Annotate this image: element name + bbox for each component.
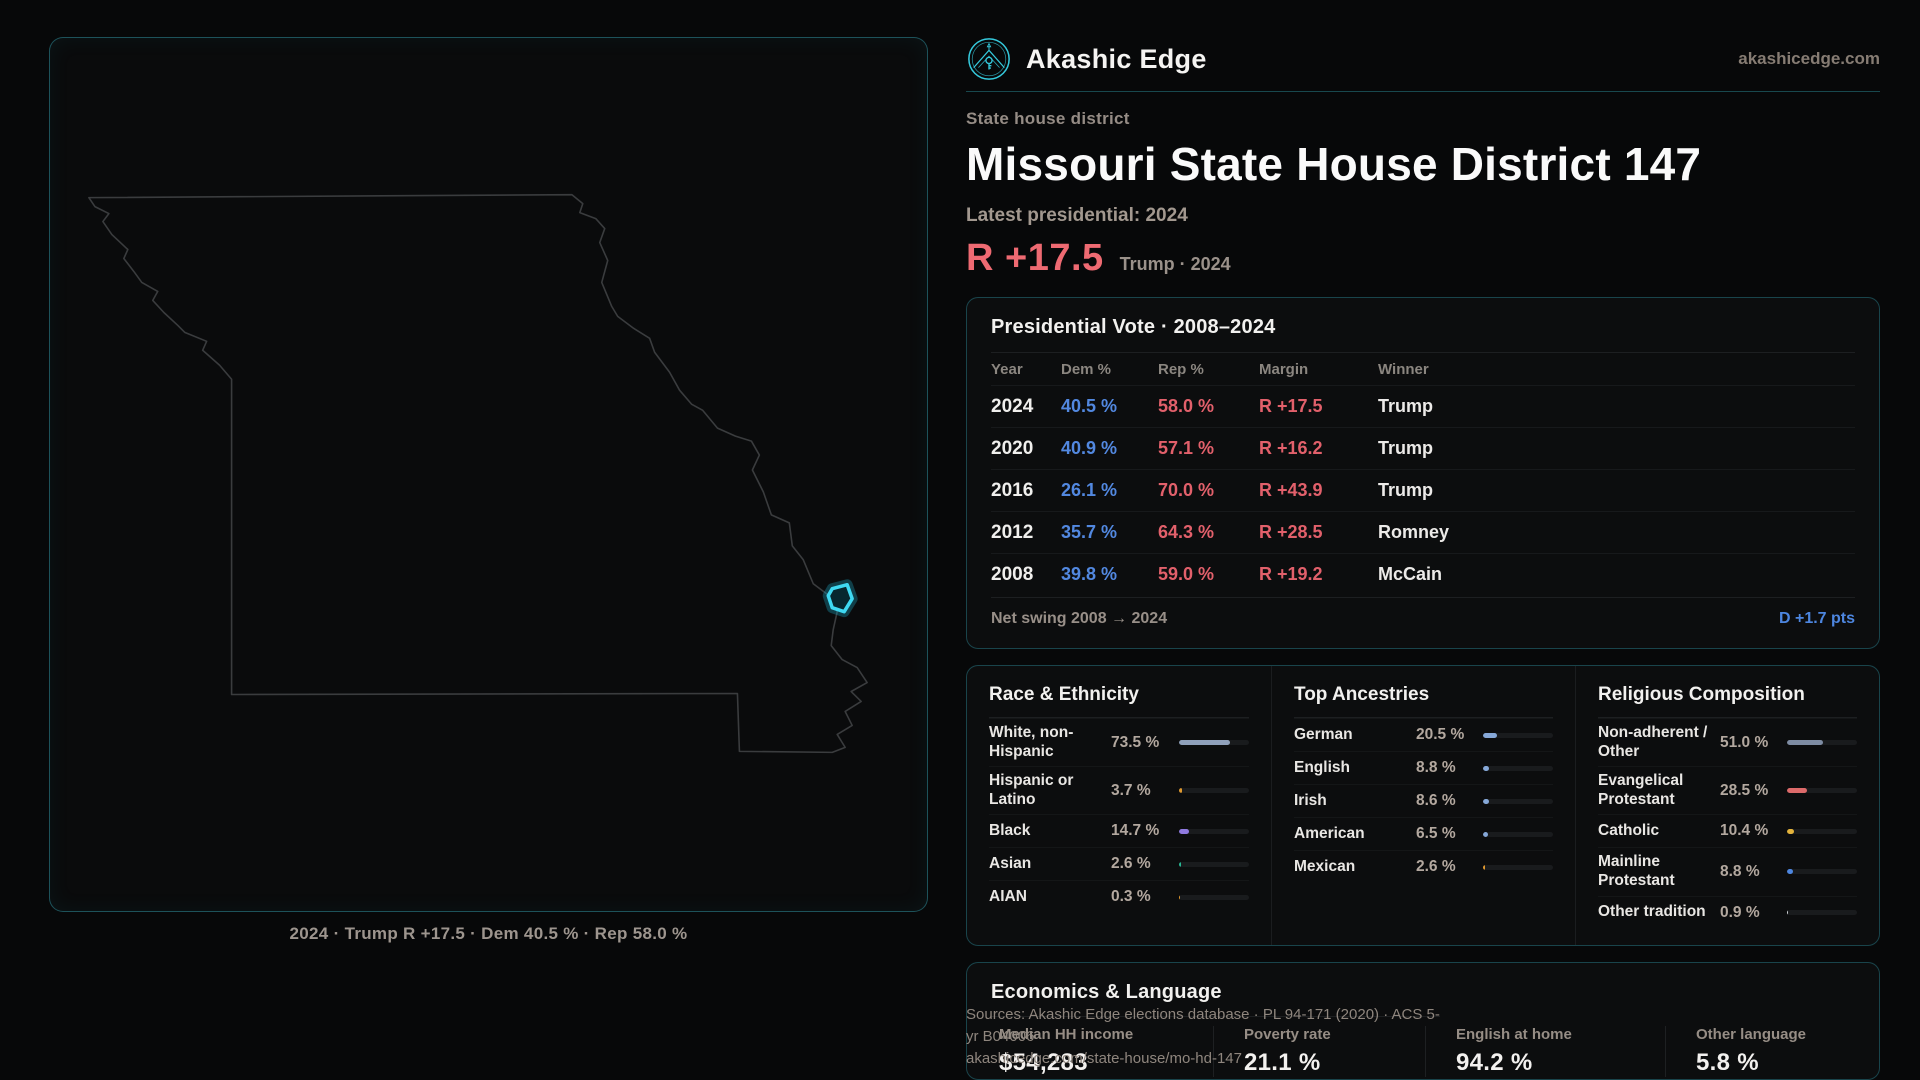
stat-value: 5.8 % <box>1696 1049 1855 1077</box>
race-ethnicity-title: Race & Ethnicity <box>989 684 1249 706</box>
presidential-vote-card: Presidential Vote · 2008–2024 Year Dem %… <box>966 297 1880 649</box>
race-ethnicity-panel: Race & Ethnicity White, non-Hispanic 73.… <box>967 666 1271 945</box>
stat-bar-fill <box>1787 829 1794 834</box>
dem-cell: 40.5 % <box>1061 396 1158 417</box>
sources-line-1: Sources: Akashic Edge elections database… <box>966 1004 1446 1048</box>
map-caption: 2024 · Trump R +17.5 · Dem 40.5 % · Rep … <box>49 924 928 944</box>
year-cell: 2012 <box>991 522 1061 544</box>
stat-value: 28.5 % <box>1720 782 1786 800</box>
stat-bar-fill <box>1787 910 1788 915</box>
stat-row: Mainline Protestant 8.8 % <box>1598 847 1857 895</box>
stat-row: Asian 2.6 % <box>989 847 1249 880</box>
winner-cell: Romney <box>1378 522 1855 543</box>
stat-bar <box>1179 862 1249 867</box>
stat-label: AIAN <box>989 888 1111 907</box>
district-map-panel <box>49 37 928 912</box>
year-cell: 2020 <box>991 438 1061 460</box>
stat-value: 2.6 % <box>1416 858 1482 876</box>
net-swing-label: Net swing 2008 → 2024 <box>991 610 1167 628</box>
stat-bar <box>1787 910 1857 915</box>
stat-value: 6.5 % <box>1416 825 1482 843</box>
margin-cell: R +28.5 <box>1259 522 1378 543</box>
col-header-margin: Margin <box>1259 361 1378 378</box>
stat-bar <box>1787 788 1857 793</box>
margin-cell: R +43.9 <box>1259 480 1378 501</box>
dem-cell: 35.7 % <box>1061 522 1158 543</box>
margin-cell: R +16.2 <box>1259 438 1378 459</box>
stat-bar <box>1483 799 1553 804</box>
margin-cell: R +19.2 <box>1259 564 1378 585</box>
stat-row: White, non-Hispanic 73.5 % <box>989 718 1249 766</box>
col-header-winner: Winner <box>1378 361 1855 378</box>
winner-cell: McCain <box>1378 564 1855 585</box>
stat-value: 0.9 % <box>1720 904 1786 922</box>
missouri-map <box>50 38 927 911</box>
stat-bar-fill <box>1179 740 1230 745</box>
demographics-card: Race & Ethnicity White, non-Hispanic 73.… <box>966 665 1880 946</box>
stat-bar <box>1179 740 1249 745</box>
table-header-row: Year Dem % Rep % Margin Winner <box>991 353 1855 385</box>
dem-cell: 26.1 % <box>1061 480 1158 501</box>
stat-row: Black 14.7 % <box>989 814 1249 847</box>
table-row: 2016 26.1 % 70.0 % R +43.9 Trump <box>991 469 1855 511</box>
stat-bar-fill <box>1179 829 1189 834</box>
sources-note: Sources: Akashic Edge elections database… <box>966 1004 1446 1070</box>
stat-label: American <box>1294 825 1416 844</box>
rep-cell: 57.1 % <box>1158 438 1259 459</box>
stat-value: 8.8 % <box>1416 759 1482 777</box>
stat-bar-fill <box>1787 869 1793 874</box>
stat-bar <box>1483 766 1553 771</box>
winner-cell: Trump <box>1378 396 1855 417</box>
religion-title: Religious Composition <box>1598 684 1857 706</box>
stat-row: English 8.8 % <box>1294 751 1553 784</box>
site-header: Akashic Edge akashicedge.com <box>966 30 1880 88</box>
stat-value: 10.4 % <box>1720 822 1786 840</box>
winner-cell: Trump <box>1378 438 1855 459</box>
stat-bar <box>1483 733 1553 738</box>
district-147-shape <box>828 585 852 612</box>
latest-presidential-label: Latest presidential: 2024 <box>966 205 1880 227</box>
presidential-vote-title: Presidential Vote · 2008–2024 <box>991 316 1855 339</box>
net-swing-value: D +1.7 pts <box>1779 610 1855 628</box>
stat-row: Evangelical Protestant 28.5 % <box>1598 766 1857 814</box>
col-header-rep: Rep % <box>1158 361 1259 378</box>
table-row: 2008 39.8 % 59.0 % R +19.2 McCain <box>991 553 1855 595</box>
report-column: Akashic Edge akashicedge.com State house… <box>966 30 1880 1080</box>
table-row: 2020 40.9 % 57.1 % R +16.2 Trump <box>991 427 1855 469</box>
stat-label: Other language <box>1696 1026 1855 1043</box>
stat-english-at-home: English at home 94.2 % <box>1425 1026 1665 1077</box>
stat-value: 94.2 % <box>1456 1049 1665 1077</box>
stat-label: Mexican <box>1294 858 1416 877</box>
stat-bar-fill <box>1483 733 1497 738</box>
net-swing-row: Net swing 2008 → 2024 D +1.7 pts <box>991 597 1855 634</box>
stat-bar-fill <box>1179 895 1180 900</box>
stat-bar <box>1483 865 1553 870</box>
margin-value: R +17.5 <box>966 237 1104 280</box>
stat-row: Catholic 10.4 % <box>1598 814 1857 847</box>
ancestries-panel: Top Ancestries German 20.5 % English 8.8… <box>1271 666 1575 945</box>
stat-row: Irish 8.6 % <box>1294 784 1553 817</box>
ancestries-title: Top Ancestries <box>1294 684 1553 706</box>
stat-label: Irish <box>1294 792 1416 811</box>
rep-cell: 64.3 % <box>1158 522 1259 543</box>
stat-label: Asian <box>989 855 1111 874</box>
stat-row: Mexican 2.6 % <box>1294 850 1553 883</box>
stat-row: Non-adherent / Other 51.0 % <box>1598 718 1857 766</box>
stat-bar <box>1787 829 1857 834</box>
stat-value: 20.5 % <box>1416 726 1482 744</box>
col-header-year: Year <box>991 361 1061 378</box>
stat-row: American 6.5 % <box>1294 817 1553 850</box>
stat-label: Non-adherent / Other <box>1598 724 1720 761</box>
rep-cell: 58.0 % <box>1158 396 1259 417</box>
stat-row: German 20.5 % <box>1294 718 1553 751</box>
stat-label: Evangelical Protestant <box>1598 772 1720 809</box>
stat-value: 2.6 % <box>1111 855 1177 873</box>
year-cell: 2008 <box>991 564 1061 586</box>
stat-bar-fill <box>1787 740 1823 745</box>
page-title: Missouri State House District 147 <box>966 137 1880 191</box>
stat-value: 51.0 % <box>1720 734 1786 752</box>
missouri-outline <box>89 195 867 753</box>
stat-label: Other tradition <box>1598 903 1720 922</box>
stat-label: Hispanic or Latino <box>989 772 1111 809</box>
stat-label: White, non-Hispanic <box>989 724 1111 761</box>
stat-bar <box>1179 788 1249 793</box>
religion-panel: Religious Composition Non-adherent / Oth… <box>1575 666 1879 945</box>
stat-row: Hispanic or Latino 3.7 % <box>989 766 1249 814</box>
header-divider <box>966 91 1880 92</box>
stat-bar <box>1787 740 1857 745</box>
stat-bar <box>1179 829 1249 834</box>
col-header-dem: Dem % <box>1061 361 1158 378</box>
akashic-edge-logo-icon <box>966 36 1012 82</box>
stat-value: 14.7 % <box>1111 822 1177 840</box>
stat-bar-fill <box>1483 865 1485 870</box>
year-cell: 2024 <box>991 396 1061 418</box>
stat-bar-fill <box>1483 832 1488 837</box>
dem-cell: 39.8 % <box>1061 564 1158 585</box>
year-cell: 2016 <box>991 480 1061 502</box>
stat-label: English at home <box>1456 1026 1665 1043</box>
stat-bar <box>1483 832 1553 837</box>
stat-label: German <box>1294 726 1416 745</box>
rep-cell: 59.0 % <box>1158 564 1259 585</box>
stat-label: Mainline Protestant <box>1598 853 1720 890</box>
stat-bar <box>1179 895 1249 900</box>
margin-context: Trump · 2024 <box>1120 254 1231 275</box>
stat-label: Black <box>989 822 1111 841</box>
stat-bar-fill <box>1179 788 1182 793</box>
economics-title: Economics & Language <box>991 981 1855 1004</box>
stat-label: Catholic <box>1598 822 1720 841</box>
stat-bar-fill <box>1179 862 1181 867</box>
dem-cell: 40.9 % <box>1061 438 1158 459</box>
table-row: 2012 35.7 % 64.3 % R +28.5 Romney <box>991 511 1855 553</box>
stat-value: 8.8 % <box>1720 863 1786 881</box>
sources-line-2: akashicedge.com/state-house/mo-hd-147 <box>966 1048 1446 1070</box>
stat-value: 8.6 % <box>1416 792 1482 810</box>
stat-row: AIAN 0.3 % <box>989 880 1249 913</box>
page-kicker: State house district <box>966 109 1880 129</box>
stat-bar-fill <box>1787 788 1807 793</box>
stat-other-language: Other language 5.8 % <box>1665 1026 1855 1077</box>
stat-value: 73.5 % <box>1111 734 1177 752</box>
headline-margin: R +17.5 Trump · 2024 <box>966 237 1880 280</box>
stat-bar-fill <box>1483 766 1489 771</box>
stat-row: Other tradition 0.9 % <box>1598 896 1857 929</box>
rep-cell: 70.0 % <box>1158 480 1259 501</box>
winner-cell: Trump <box>1378 480 1855 501</box>
table-row: 2024 40.5 % 58.0 % R +17.5 Trump <box>991 385 1855 427</box>
stat-value: 0.3 % <box>1111 888 1177 906</box>
stat-label: English <box>1294 759 1416 778</box>
site-domain-link[interactable]: akashicedge.com <box>1738 49 1880 69</box>
brand-name: Akashic Edge <box>1026 44 1207 75</box>
stat-bar-fill <box>1483 799 1489 804</box>
stat-bar <box>1787 869 1857 874</box>
margin-cell: R +17.5 <box>1259 396 1378 417</box>
stat-value: 3.7 % <box>1111 782 1177 800</box>
